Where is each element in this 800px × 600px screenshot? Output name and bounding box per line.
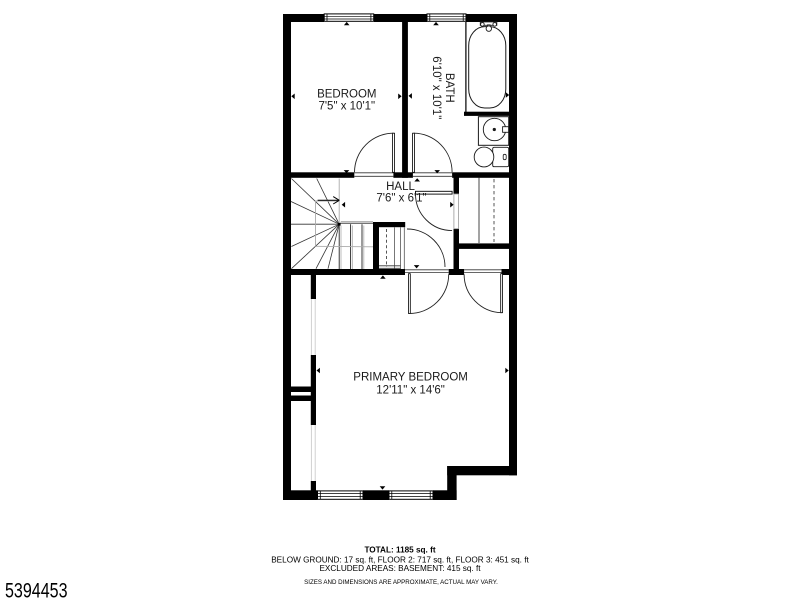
svg-text:HALL: HALL (386, 181, 415, 193)
svg-text:TOTAL: 1185 sq. ft: TOTAL: 1185 sq. ft (364, 546, 435, 555)
svg-text:BEDROOM: BEDROOM (317, 88, 376, 100)
svg-text:SIZES AND DIMENSIONS ARE APPRO: SIZES AND DIMENSIONS ARE APPROXIMATE, AC… (304, 579, 498, 586)
svg-text:5394453: 5394453 (5, 578, 68, 600)
svg-text:12'11" x 14'6": 12'11" x 14'6" (376, 385, 445, 397)
svg-text:7'6" x 6'1": 7'6" x 6'1" (376, 192, 426, 204)
svg-text:7'5" x 10'1": 7'5" x 10'1" (318, 100, 375, 112)
svg-text:6'10" x 10'1": 6'10" x 10'1" (430, 56, 442, 119)
svg-text:PRIMARY BEDROOM: PRIMARY BEDROOM (353, 372, 468, 384)
svg-text:BATH: BATH (443, 73, 455, 103)
svg-text:EXCLUDED AREAS: BASEMENT: 415: EXCLUDED AREAS: BASEMENT: 415 sq. ft (319, 564, 481, 573)
